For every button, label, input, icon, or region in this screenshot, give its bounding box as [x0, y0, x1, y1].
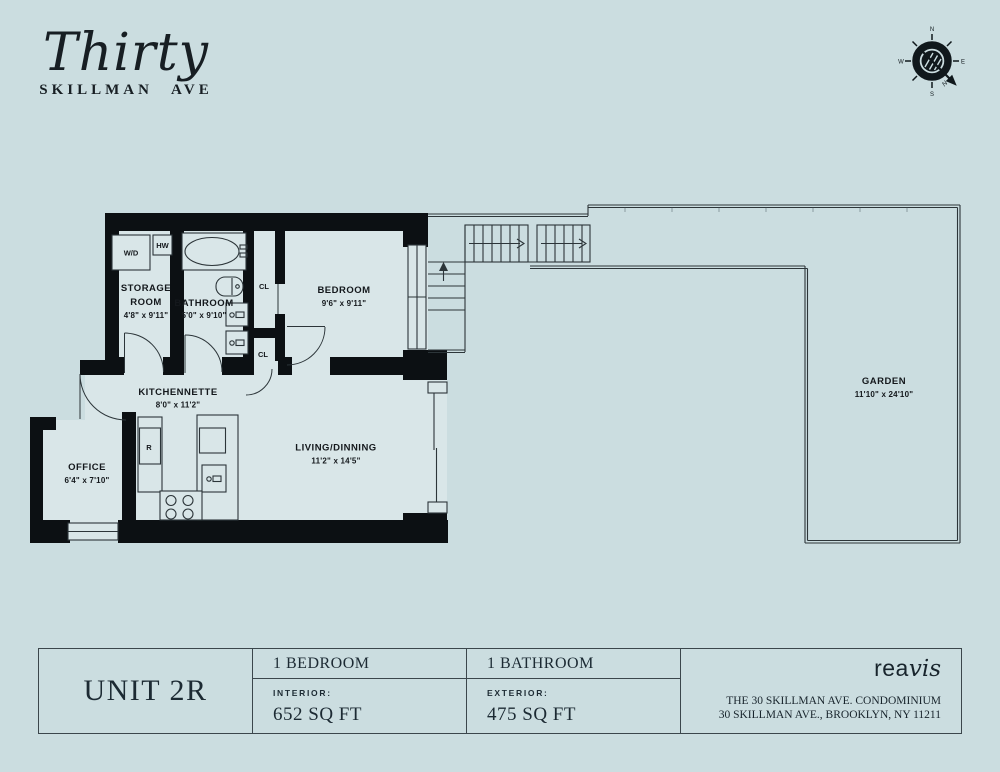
- interior-sqft: 652 SQ FT: [273, 704, 446, 726]
- exterior-sqft: 475 SQ FT: [487, 704, 660, 726]
- reavis-logo-rea: rea: [874, 655, 909, 681]
- unit-info-bar: UNIT 2R 1 BEDROOM INTERIOR: 652 SQ FT 1 …: [38, 648, 962, 734]
- bathroom-label: BATHROOM: [174, 298, 233, 309]
- garden-label: GARDEN: [862, 376, 906, 387]
- bedroom-label: BEDROOM: [317, 285, 370, 296]
- garden-fence-ticks: [625, 208, 907, 213]
- storage-room-label-line1: STORAGE: [121, 283, 171, 294]
- stairs-up-arrow: [439, 262, 448, 271]
- bedroom-count: 1 BEDROOM: [253, 649, 466, 679]
- address-line2: 30 SKILLMAN AVE., BROOKLYN, NY 11211: [701, 708, 941, 722]
- building-address: THE 30 SKILLMAN AVE. CONDOMINIUM 30 SKIL…: [701, 694, 941, 722]
- reavis-logo: reavis: [701, 655, 941, 682]
- stairs: [428, 214, 590, 353]
- toilet: [216, 277, 243, 296]
- living-dining-dims: 11'2" x 14'5": [311, 457, 360, 466]
- washer-dryer-label: W/D: [124, 249, 139, 258]
- garden-dims: 11'10" x 24'10": [855, 390, 913, 399]
- interior-label: INTERIOR:: [273, 688, 446, 698]
- garden-outline: [530, 205, 960, 543]
- closet-lower-label: CL: [258, 350, 268, 359]
- compass-s-label: S: [930, 92, 934, 98]
- office-dims: 6'4" x 7'10": [65, 476, 110, 485]
- compass-icon: N E S W N: [898, 27, 965, 98]
- living-dining-label: LIVING/DINNING: [295, 443, 376, 454]
- reavis-logo-vis: vis: [909, 656, 941, 682]
- water-heater-label: HW: [156, 241, 169, 250]
- bathroom-dims: 5'0" x 9'10": [182, 311, 227, 320]
- stove: [160, 491, 202, 520]
- dishwasher: [202, 465, 226, 492]
- brand-address-cell: reavis THE 30 SKILLMAN AVE. CONDOMINIUM …: [680, 649, 961, 733]
- kitchennette-dims: 8'0" x 11'2": [156, 401, 201, 410]
- bathroom-column: 1 BATHROOM EXTERIOR: 475 SQ FT: [466, 649, 680, 733]
- kitchennette-label: KITCHENNETTE: [138, 387, 217, 398]
- compass-w-label: W: [898, 60, 904, 66]
- refrigerator-label: R: [146, 443, 152, 452]
- compass-e-label: E: [961, 60, 965, 66]
- bathroom-count: 1 BATHROOM: [467, 649, 680, 679]
- office-label: OFFICE: [68, 462, 106, 473]
- floorplan-flyer: Thirty SKILLMAN AVE: [0, 0, 1000, 772]
- bedroom-dims: 9'6" x 9'11": [322, 299, 367, 308]
- storage-room-dims: 4'8" x 9'11": [124, 311, 169, 320]
- kitchen-sink: [200, 428, 226, 453]
- address-line1: THE 30 SKILLMAN AVE. CONDOMINIUM: [701, 694, 941, 708]
- unit-title: UNIT 2R: [39, 649, 252, 733]
- exterior-label: EXTERIOR:: [487, 688, 660, 698]
- bedroom-column: 1 BEDROOM INTERIOR: 652 SQ FT: [252, 649, 466, 733]
- closet-upper-label: CL: [259, 282, 269, 291]
- storage-room-label-line2: ROOM: [130, 297, 162, 308]
- bathtub: [182, 233, 247, 270]
- compass-n-label: N: [930, 27, 934, 33]
